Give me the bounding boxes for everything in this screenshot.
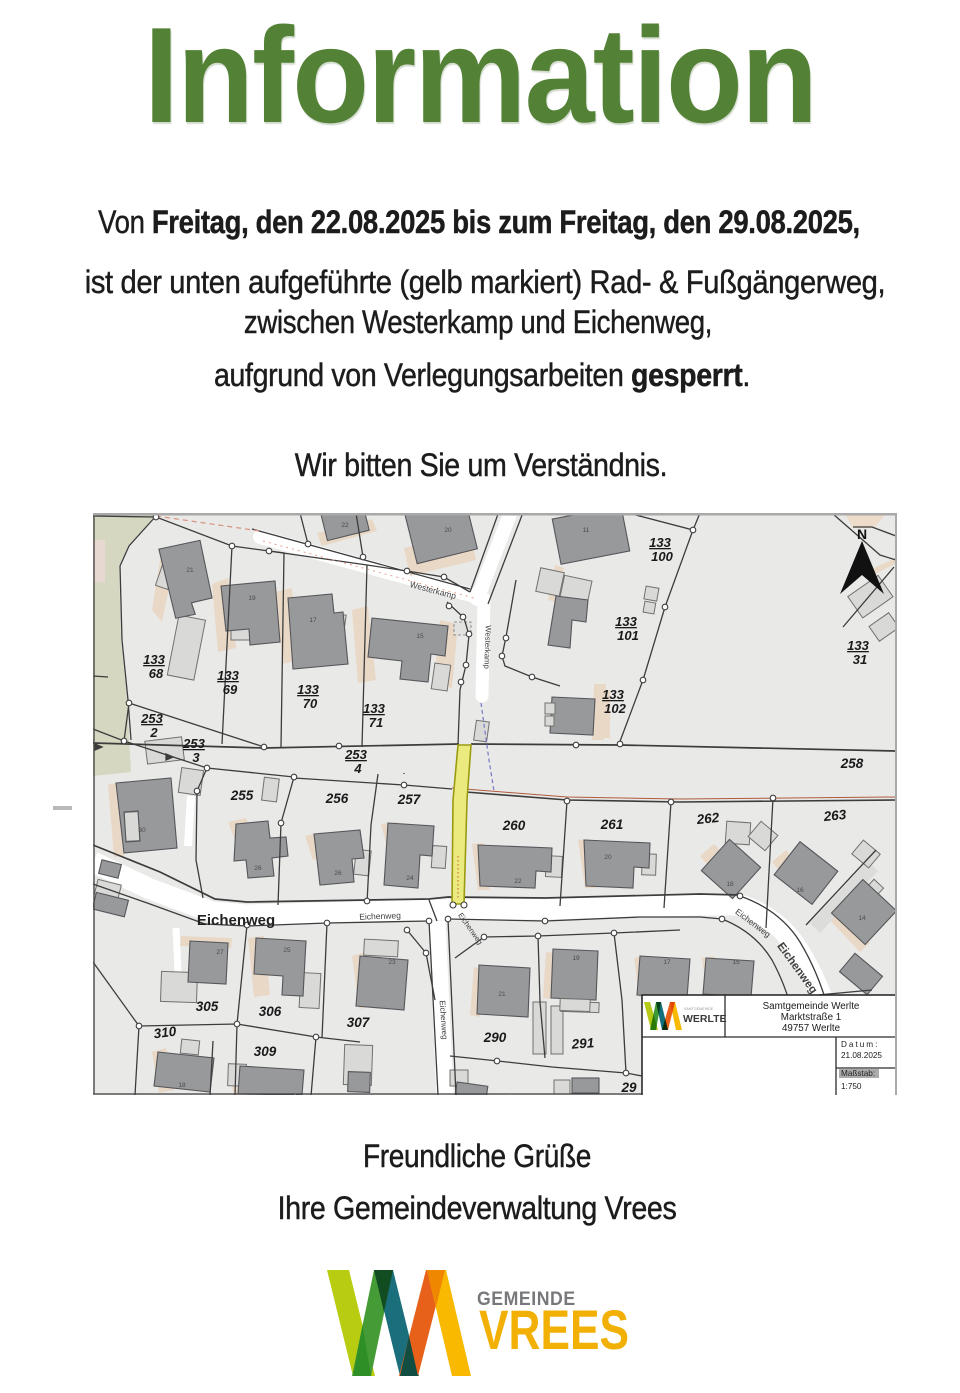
- svg-text:133: 133: [143, 652, 165, 667]
- svg-text:290: 290: [483, 1030, 507, 1045]
- svg-text:255: 255: [230, 788, 254, 803]
- svg-text:258: 258: [840, 756, 864, 771]
- svg-text:Eichenweg: Eichenweg: [359, 910, 401, 921]
- svg-text:253: 253: [344, 747, 367, 762]
- svg-text:18: 18: [726, 881, 734, 888]
- svg-text:21: 21: [186, 567, 194, 574]
- svg-text:17: 17: [309, 617, 317, 624]
- svg-text:11: 11: [583, 527, 590, 534]
- svg-text:Eichenweg: Eichenweg: [197, 912, 275, 929]
- svg-text:26: 26: [334, 870, 342, 877]
- svg-text:306: 306: [259, 1004, 282, 1019]
- svg-text:31: 31: [853, 652, 867, 667]
- svg-text:3: 3: [192, 750, 200, 765]
- svg-text:22: 22: [514, 878, 522, 885]
- svg-text:26: 26: [254, 865, 262, 872]
- svg-text:17: 17: [663, 959, 671, 966]
- svg-text:260: 260: [502, 818, 526, 833]
- svg-text:15: 15: [732, 959, 740, 966]
- svg-text:27: 27: [216, 949, 224, 956]
- svg-text:261: 261: [600, 817, 624, 832]
- svg-text:21.08.2025: 21.08.2025: [841, 1051, 882, 1060]
- svg-text:16: 16: [796, 887, 804, 894]
- svg-text:18: 18: [178, 1082, 186, 1089]
- svg-text:309: 309: [254, 1044, 277, 1059]
- svg-text:133: 133: [649, 535, 671, 550]
- svg-text:133: 133: [615, 614, 637, 629]
- svg-text:22: 22: [341, 522, 349, 529]
- svg-text:100: 100: [651, 549, 673, 564]
- svg-text:Maßstab:: Maßstab:: [841, 1069, 875, 1078]
- svg-text:1:750: 1:750: [841, 1082, 862, 1091]
- svg-text:49757 Werlte: 49757 Werlte: [782, 1023, 841, 1034]
- svg-text:263: 263: [822, 807, 847, 824]
- svg-text:262: 262: [695, 810, 720, 827]
- svg-text:4: 4: [353, 761, 362, 776]
- svg-text:101: 101: [617, 628, 639, 643]
- svg-text:WERLTE: WERLTE: [683, 1013, 727, 1025]
- svg-text:19: 19: [248, 595, 256, 602]
- svg-text:15: 15: [416, 633, 424, 640]
- svg-text:133: 133: [602, 687, 624, 702]
- svg-text:305: 305: [196, 999, 219, 1014]
- svg-text:30: 30: [138, 827, 146, 834]
- svg-text:25: 25: [283, 947, 291, 954]
- svg-text:69: 69: [223, 682, 238, 697]
- svg-text:24: 24: [406, 875, 414, 882]
- svg-text:19: 19: [572, 955, 580, 962]
- svg-text:2: 2: [149, 725, 158, 740]
- svg-text:307: 307: [347, 1015, 371, 1030]
- svg-text:14: 14: [858, 915, 866, 922]
- svg-text:70: 70: [303, 696, 318, 711]
- svg-text:29: 29: [620, 1080, 637, 1095]
- svg-text:20: 20: [604, 854, 612, 861]
- svg-text:133: 133: [217, 668, 239, 683]
- svg-text:133: 133: [363, 701, 385, 716]
- svg-text:253: 253: [140, 711, 163, 726]
- svg-text:256: 256: [325, 791, 349, 806]
- svg-text:Westerkamp: Westerkamp: [482, 625, 493, 670]
- svg-text:102: 102: [604, 701, 626, 716]
- svg-text:310: 310: [153, 1024, 178, 1042]
- svg-text:71: 71: [369, 715, 383, 730]
- svg-text:Marktstraße 1: Marktstraße 1: [781, 1012, 841, 1023]
- svg-text:N: N: [857, 526, 867, 542]
- svg-text:68: 68: [149, 666, 164, 681]
- svg-text:20: 20: [444, 527, 452, 534]
- svg-text:257: 257: [397, 792, 422, 807]
- svg-text:133: 133: [297, 682, 319, 697]
- svg-text:SAMTGEMEINDE: SAMTGEMEINDE: [684, 1007, 714, 1011]
- svg-text:21: 21: [498, 991, 506, 998]
- svg-text:Samtgemeinde Werlte: Samtgemeinde Werlte: [763, 1001, 860, 1012]
- svg-text:133: 133: [847, 638, 869, 653]
- svg-text:Datum:: Datum:: [841, 1040, 879, 1049]
- svg-text:253: 253: [182, 736, 205, 751]
- svg-text:23: 23: [388, 959, 396, 966]
- svg-text:291: 291: [570, 1035, 595, 1052]
